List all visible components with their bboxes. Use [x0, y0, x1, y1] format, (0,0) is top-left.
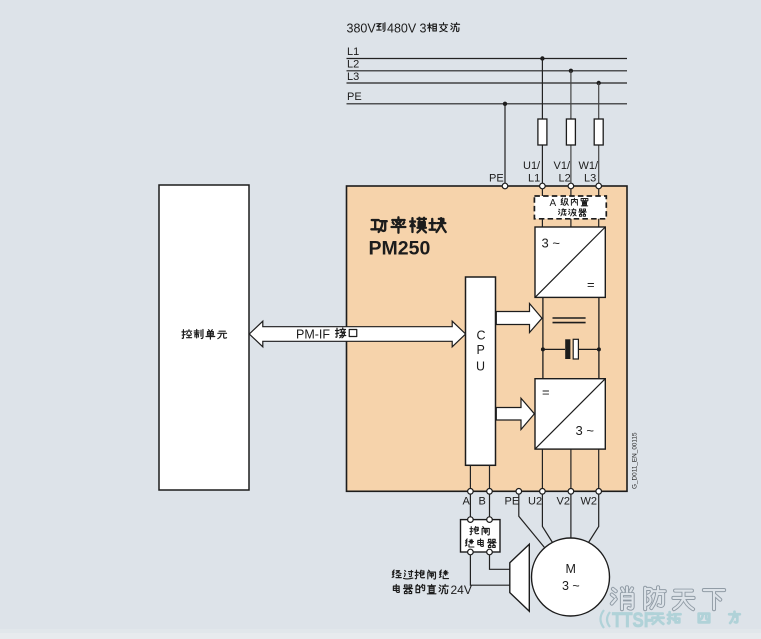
svg-text:PE: PE [489, 173, 504, 185]
svg-text:=: = [587, 277, 595, 292]
svg-text:3 ~: 3 ~ [576, 423, 595, 438]
svg-text:3 ~: 3 ~ [562, 579, 580, 593]
svg-text:P: P [477, 343, 485, 357]
svg-text:G_D011_EN_00115: G_D011_EN_00115 [632, 432, 639, 489]
svg-text:PM-IF: PM-IF [296, 328, 330, 342]
svg-text:V1/: V1/ [554, 160, 571, 172]
svg-text:3 ~: 3 ~ [542, 236, 561, 251]
svg-text:=: = [542, 385, 550, 400]
svg-text:C: C [477, 329, 486, 343]
svg-text:L3: L3 [584, 173, 596, 185]
svg-text:L1: L1 [347, 46, 359, 58]
svg-text:24V: 24V [451, 583, 472, 597]
svg-text:PM250: PM250 [369, 238, 431, 260]
svg-text:M: M [566, 562, 576, 576]
svg-text:TTSF: TTSF [612, 608, 654, 632]
svg-text:U: U [476, 360, 485, 374]
svg-text:W2: W2 [581, 496, 598, 508]
svg-text:3: 3 [420, 22, 427, 36]
svg-text:B: B [479, 496, 486, 508]
svg-text:L2: L2 [347, 59, 359, 71]
svg-text:380V: 380V [347, 22, 377, 36]
svg-text:U1/: U1/ [523, 160, 541, 172]
svg-text:PE: PE [347, 91, 362, 103]
svg-text:PE: PE [505, 496, 520, 508]
svg-text:A: A [550, 198, 557, 209]
svg-text:L1: L1 [528, 173, 540, 185]
svg-text:U2: U2 [528, 496, 542, 508]
svg-text:L3: L3 [347, 71, 359, 83]
svg-text:V2: V2 [557, 496, 570, 508]
svg-text:W1/: W1/ [579, 160, 600, 172]
svg-text:L2: L2 [559, 173, 571, 185]
svg-text:480V: 480V [387, 22, 417, 36]
svg-text:A: A [463, 496, 471, 508]
